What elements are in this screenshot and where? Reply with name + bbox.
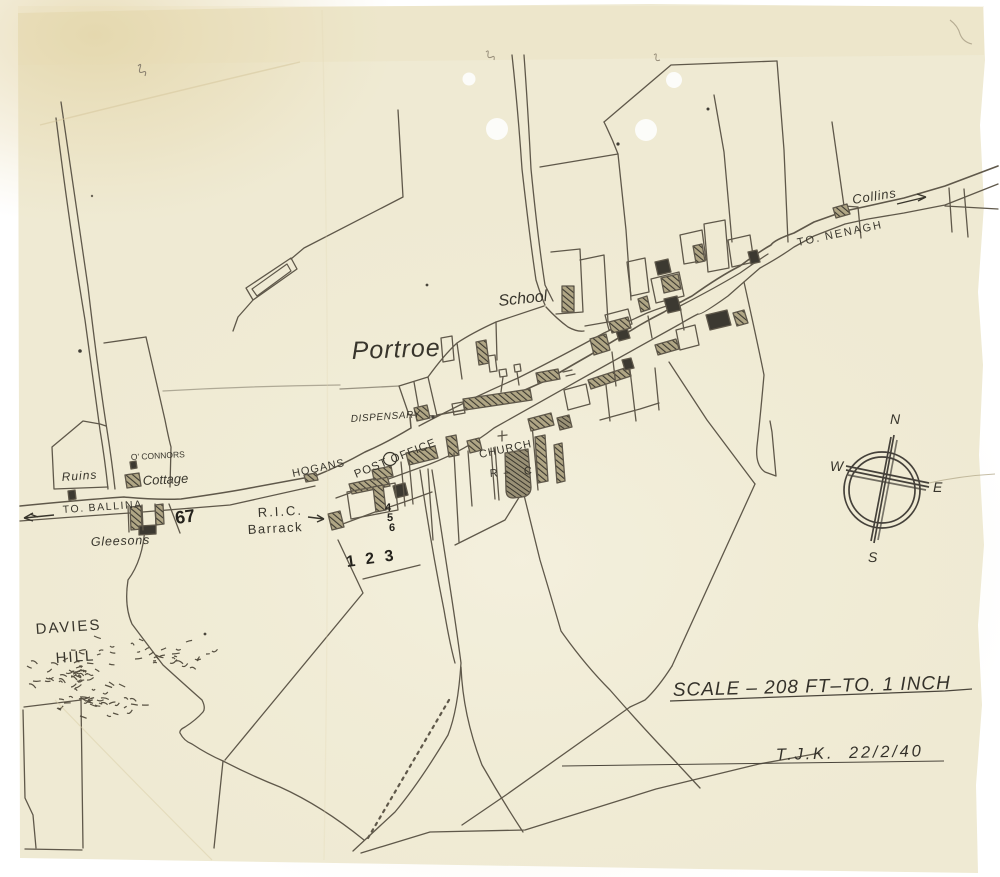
svg-text:N: N xyxy=(890,411,901,427)
svg-text:Cottage: Cottage xyxy=(142,471,188,488)
svg-text:Ruins: Ruins xyxy=(61,468,98,484)
svg-text:R.I.C.: R.I.C. xyxy=(257,503,303,520)
svg-text:S: S xyxy=(868,549,878,565)
svg-text:67: 67 xyxy=(174,505,197,528)
svg-text:Gleesons: Gleesons xyxy=(91,533,151,549)
svg-text:Portroe: Portroe xyxy=(351,334,441,365)
svg-text:6: 6 xyxy=(389,522,395,534)
svg-text:Barrack: Barrack xyxy=(247,519,303,537)
svg-text:W: W xyxy=(830,458,845,474)
